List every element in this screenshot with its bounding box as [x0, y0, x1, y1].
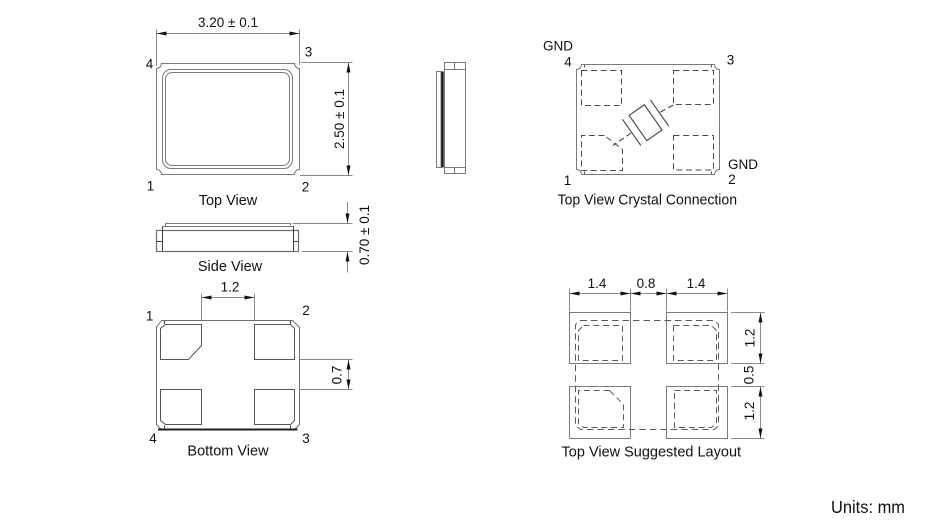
svg-text:Top View Crystal Connection: Top View Crystal Connection	[558, 193, 738, 209]
svg-text:4: 4	[149, 431, 157, 446]
svg-text:Units: mm: Units: mm	[831, 497, 905, 517]
svg-text:2: 2	[302, 180, 310, 195]
svg-text:2: 2	[728, 172, 736, 187]
svg-text:0.70 ± 0.1: 0.70 ± 0.1	[357, 205, 372, 265]
svg-text:1: 1	[147, 179, 155, 194]
svg-text:2.50 ± 0.1: 2.50 ± 0.1	[332, 89, 347, 149]
svg-text:3.20 ± 0.1: 3.20 ± 0.1	[198, 15, 258, 30]
svg-text:Bottom View: Bottom View	[187, 444, 269, 460]
svg-text:0.8: 0.8	[637, 276, 656, 291]
svg-text:GND: GND	[728, 157, 758, 172]
svg-text:1.4: 1.4	[588, 276, 607, 291]
svg-text:Top View Suggested Layout: Top View Suggested Layout	[562, 445, 742, 461]
svg-text:0.5: 0.5	[742, 366, 757, 385]
svg-text:1: 1	[564, 173, 572, 188]
svg-text:0.7: 0.7	[330, 366, 345, 385]
svg-text:4: 4	[564, 55, 572, 70]
svg-text:Side View: Side View	[198, 259, 263, 275]
svg-text:1.2: 1.2	[743, 329, 758, 348]
svg-text:1.4: 1.4	[687, 276, 706, 291]
svg-text:1: 1	[146, 309, 154, 324]
svg-text:1.2: 1.2	[221, 280, 240, 295]
svg-text:3: 3	[727, 53, 735, 68]
svg-text:4: 4	[146, 57, 154, 72]
svg-text:2: 2	[302, 303, 310, 318]
svg-text:3: 3	[305, 45, 313, 60]
svg-text:Top View: Top View	[199, 193, 258, 209]
svg-text:3: 3	[302, 431, 310, 446]
svg-text:GND: GND	[543, 39, 573, 54]
svg-text:1.2: 1.2	[742, 402, 757, 421]
